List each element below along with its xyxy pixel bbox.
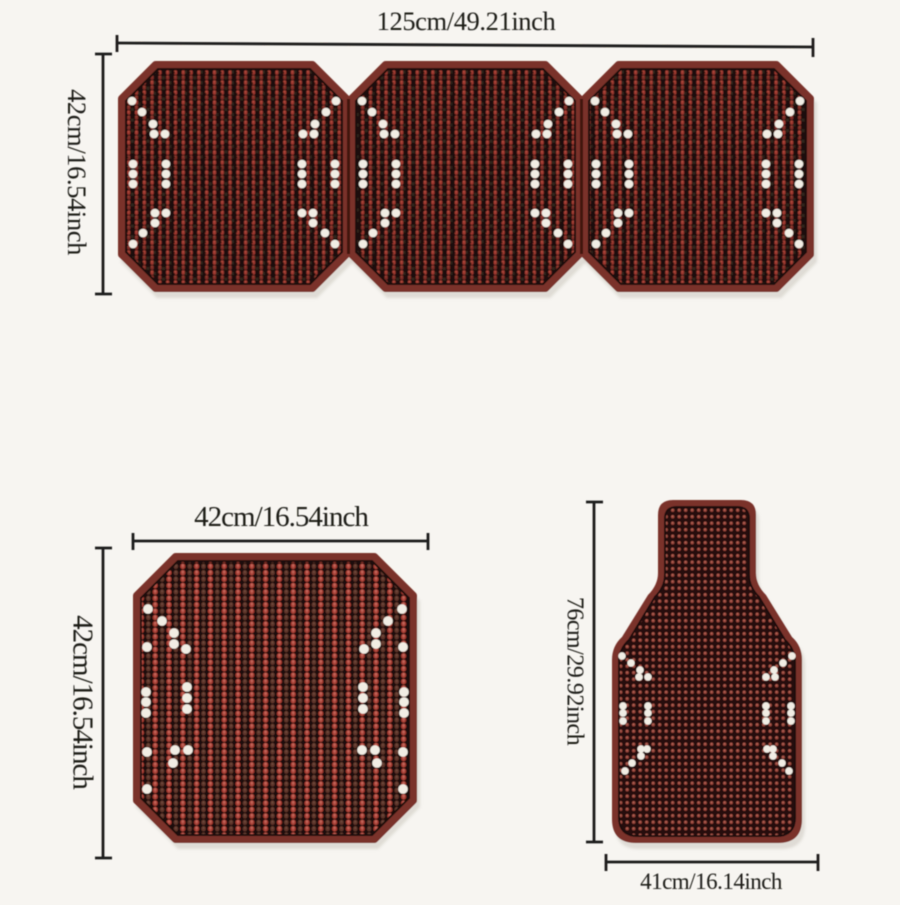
svg-text:76cm/29.92inch: 76cm/29.92inch [561, 597, 587, 746]
svg-text:42cm/16.54inch: 42cm/16.54inch [62, 89, 92, 255]
svg-text:125cm/49.21inch: 125cm/49.21inch [377, 6, 556, 36]
svg-text:42cm/16.54inch: 42cm/16.54inch [66, 615, 98, 790]
svg-text:41cm/16.14inch: 41cm/16.14inch [640, 869, 783, 894]
svg-text:42cm/16.54inch: 42cm/16.54inch [194, 501, 369, 533]
